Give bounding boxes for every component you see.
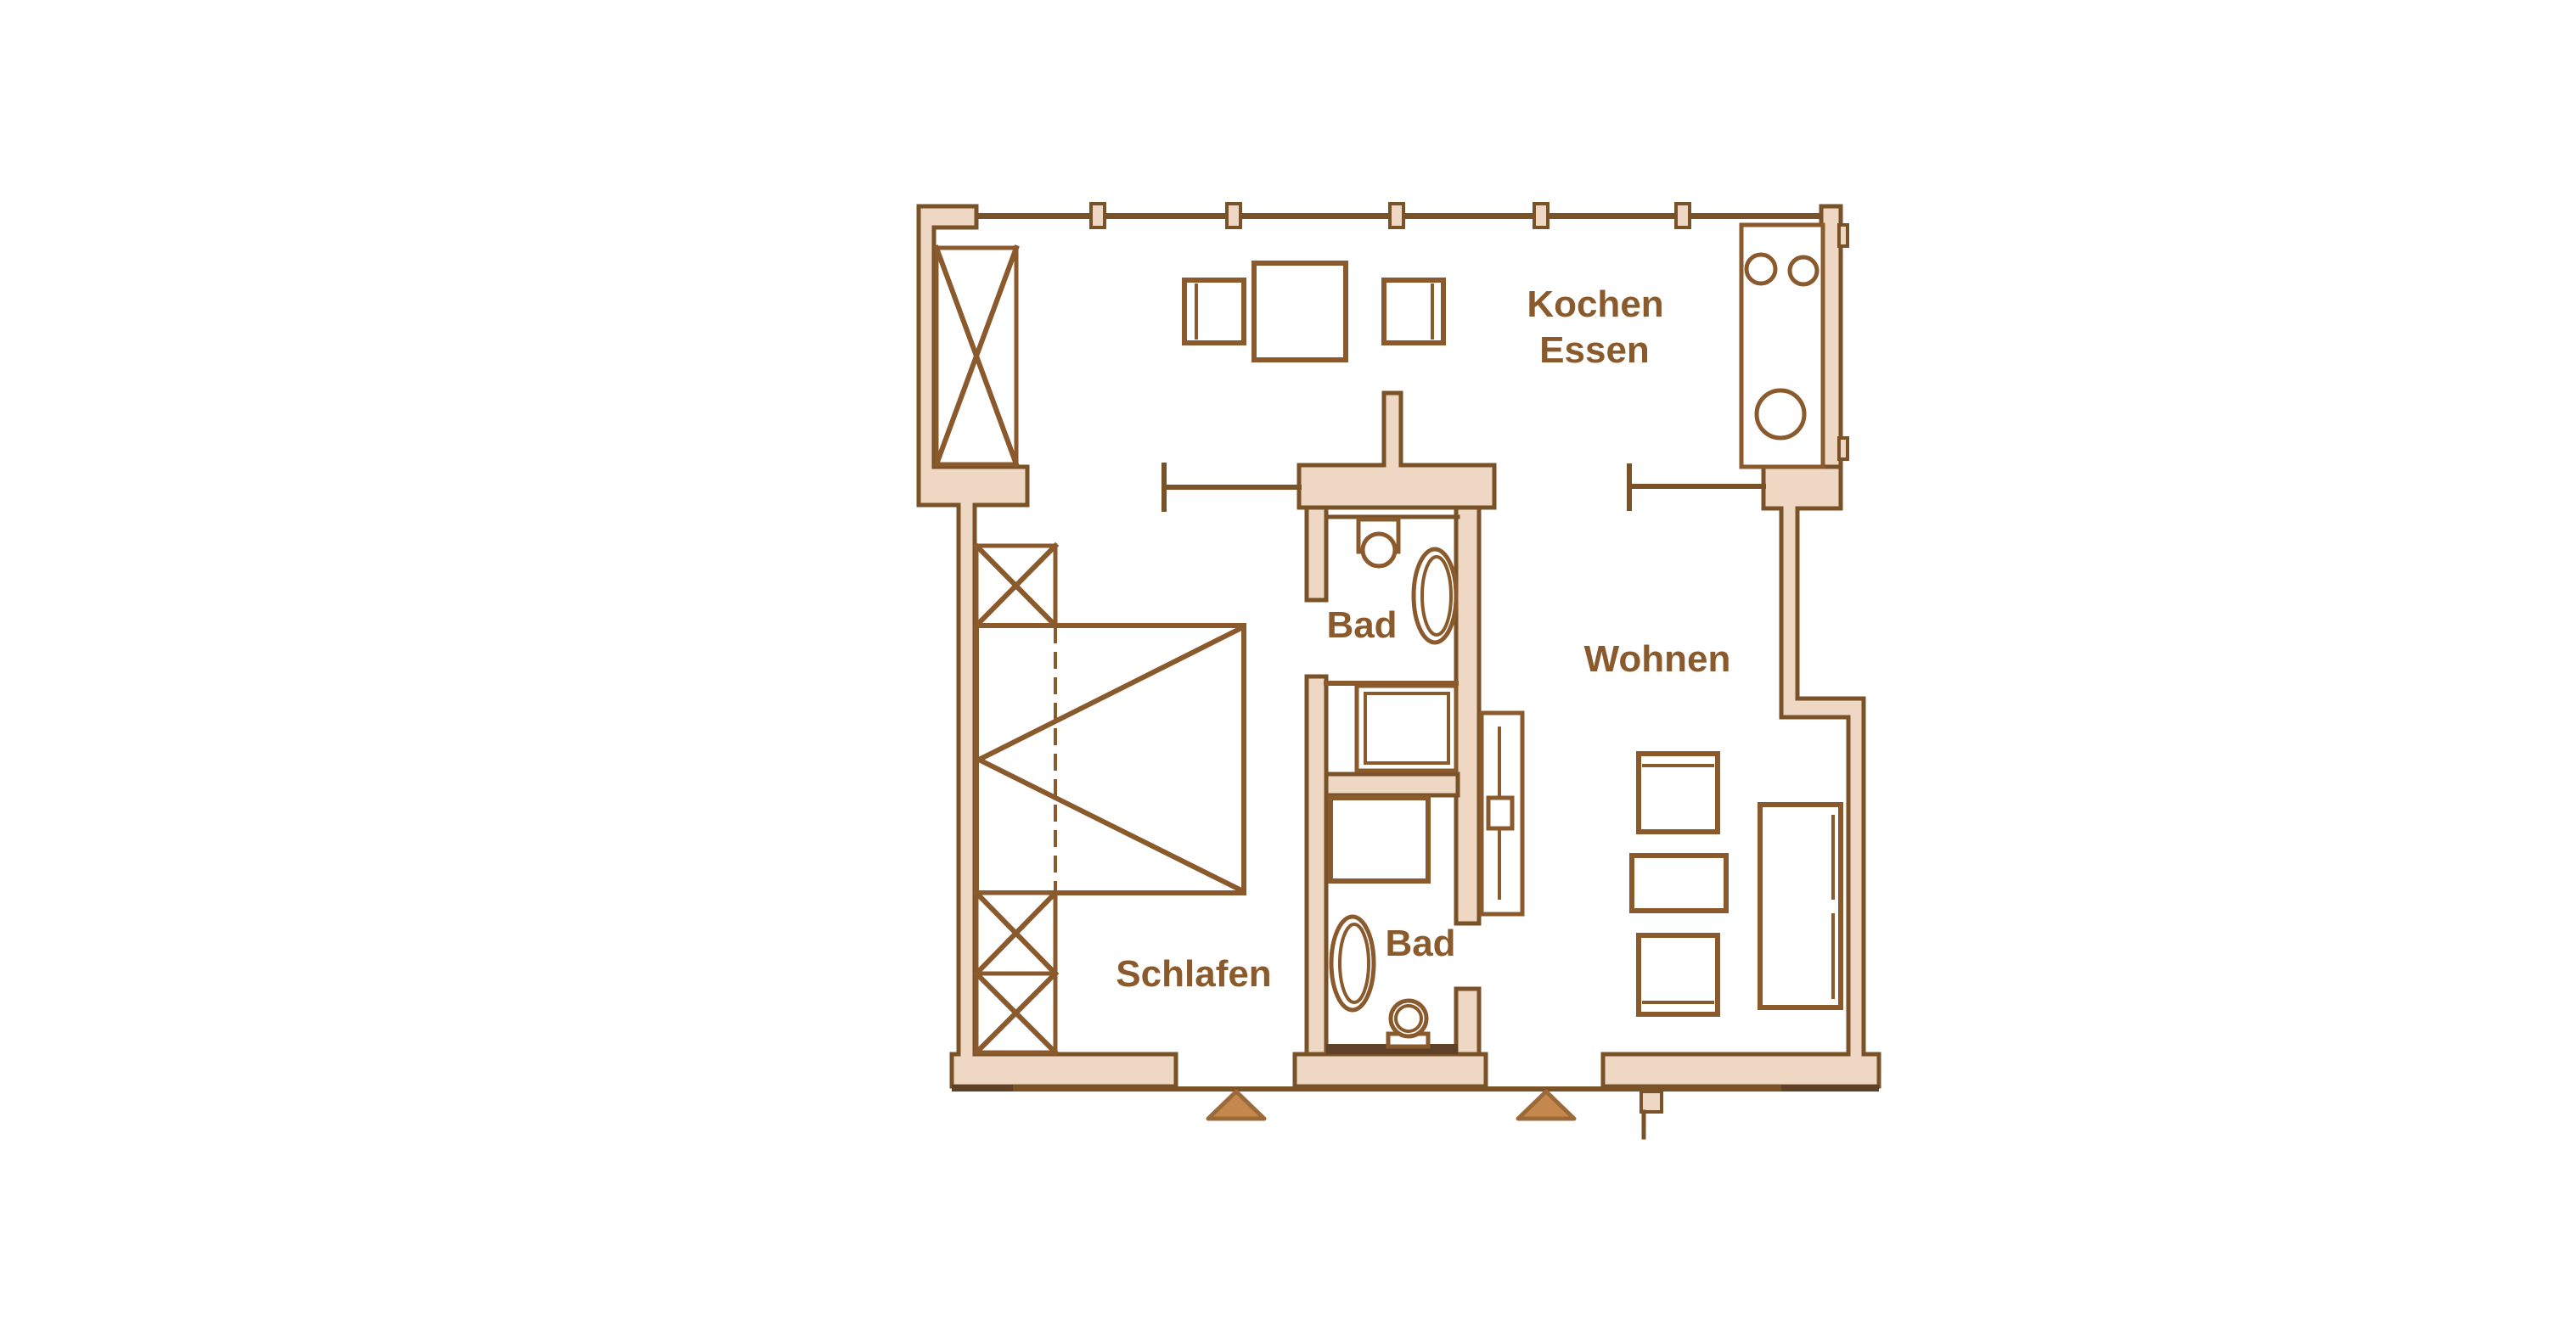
sink-bowl-icon bbox=[1757, 390, 1804, 438]
bath-upper-area: Bad bbox=[1326, 519, 1456, 771]
window-tick-icon bbox=[1676, 204, 1690, 227]
bed-outline bbox=[976, 626, 1244, 893]
bath-bottom-wall bbox=[1295, 1054, 1486, 1086]
toilet-bowl-icon bbox=[1363, 534, 1395, 566]
dining-table bbox=[1254, 263, 1346, 360]
dining-chair bbox=[1384, 280, 1443, 343]
wardrobe-crossbox bbox=[936, 248, 1016, 464]
sink-basin-icon bbox=[1746, 255, 1775, 283]
bath-top-wall-block bbox=[1299, 393, 1494, 508]
entrance-arrow-icon bbox=[1518, 1091, 1574, 1119]
entry-door-stub bbox=[1641, 1091, 1662, 1112]
sink-basin-icon bbox=[1790, 257, 1817, 284]
dining-chair bbox=[1184, 280, 1244, 343]
window-tick-icon bbox=[1227, 204, 1240, 227]
entrance-markers bbox=[1208, 1091, 1574, 1119]
bath-right-wall-lower bbox=[1456, 989, 1479, 1054]
window-tick-icon bbox=[1534, 204, 1548, 227]
window-tick-icon bbox=[1091, 204, 1105, 227]
tall-cabinet bbox=[1482, 713, 1522, 914]
room-label-essen: Essen bbox=[1539, 329, 1650, 371]
nightstand-crossbox bbox=[976, 546, 1055, 626]
bottom-dark-accent bbox=[952, 1085, 1013, 1091]
room-label-bad-lower: Bad bbox=[1385, 923, 1455, 964]
cabinet-handle bbox=[1488, 798, 1512, 828]
bath-divider-wall bbox=[1326, 774, 1458, 795]
bed-symbol bbox=[976, 626, 1244, 893]
room-label-kochen: Kochen bbox=[1527, 283, 1663, 325]
kitchen-dining-area: Kochen Essen bbox=[936, 225, 1823, 467]
sleeping-area: Schlafen bbox=[976, 546, 1272, 1052]
room-label-wohnen: Wohnen bbox=[1584, 638, 1731, 680]
sofa-outline bbox=[1760, 805, 1841, 1007]
room-label-bad-upper: Bad bbox=[1326, 604, 1397, 646]
cupboard-crossbox bbox=[976, 893, 1055, 1052]
entrance-arrow-icon bbox=[1208, 1091, 1264, 1119]
living-area: Wohnen bbox=[1584, 638, 1841, 1014]
bottom-dark-accent bbox=[1781, 1085, 1879, 1091]
coffee-table bbox=[1632, 856, 1726, 911]
window-tick-icon bbox=[1390, 204, 1403, 227]
wall-notch bbox=[1839, 438, 1848, 459]
room-label-schlafen: Schlafen bbox=[1116, 953, 1271, 995]
bath-left-wall-lower bbox=[1307, 676, 1326, 1054]
wall-notch bbox=[1839, 225, 1848, 246]
floor-plan-canvas: Kochen Essen Schlafen bbox=[0, 0, 2576, 1330]
floor-plan-drawing: Kochen Essen Schlafen bbox=[0, 0, 2576, 1330]
shower-tray bbox=[1330, 798, 1428, 881]
bath-right-wall-upper bbox=[1456, 508, 1479, 923]
sofa bbox=[1760, 805, 1841, 1007]
shower-tray bbox=[1357, 686, 1456, 771]
bath-left-wall-upper bbox=[1307, 508, 1326, 600]
